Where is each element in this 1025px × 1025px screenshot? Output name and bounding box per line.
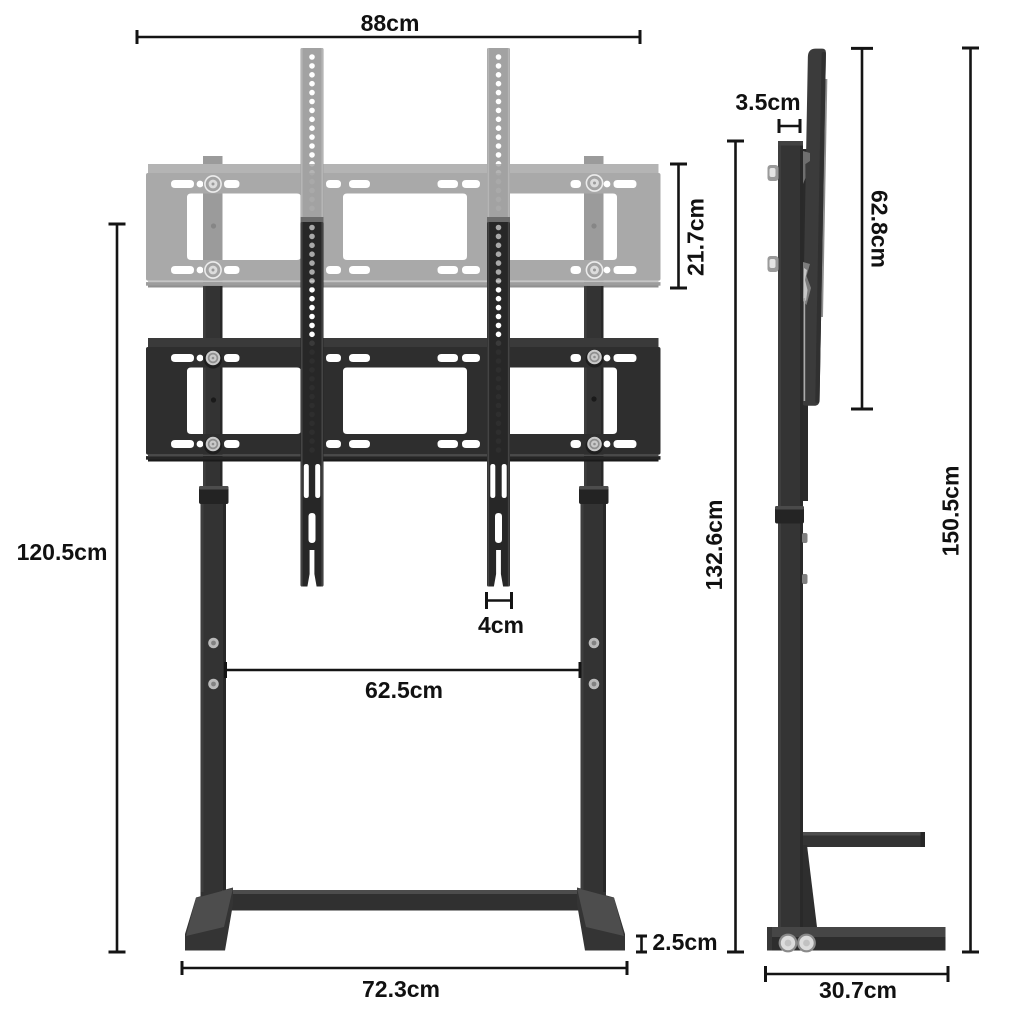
svg-text:150.5cm: 150.5cm bbox=[938, 466, 964, 557]
svg-text:2.5cm: 2.5cm bbox=[652, 929, 717, 955]
svg-text:132.6cm: 132.6cm bbox=[701, 500, 727, 591]
svg-text:72.3cm: 72.3cm bbox=[362, 976, 440, 1002]
svg-text:4cm: 4cm bbox=[478, 612, 524, 638]
svg-text:3.5cm: 3.5cm bbox=[735, 89, 800, 115]
svg-text:62.5cm: 62.5cm bbox=[365, 677, 443, 703]
svg-text:21.7cm: 21.7cm bbox=[683, 198, 709, 276]
svg-text:62.8cm: 62.8cm bbox=[867, 190, 893, 268]
svg-text:88cm: 88cm bbox=[361, 10, 420, 36]
svg-text:120.5cm: 120.5cm bbox=[17, 539, 108, 565]
svg-text:30.7cm: 30.7cm bbox=[819, 977, 897, 1003]
